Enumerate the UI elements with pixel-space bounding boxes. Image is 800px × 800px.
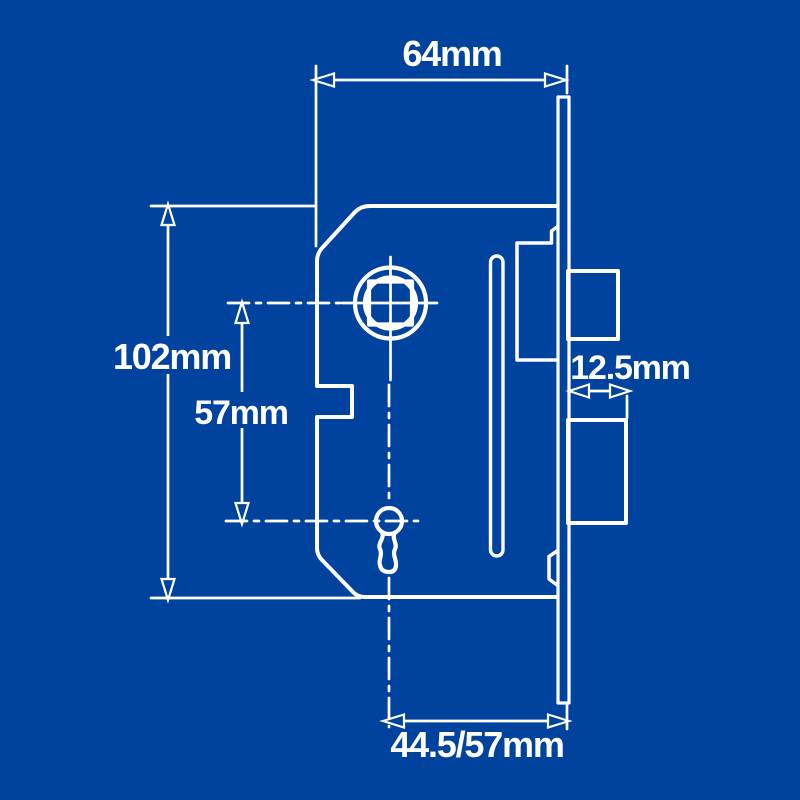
lock-case-outline	[317, 206, 557, 597]
inner-edge-slot	[491, 256, 504, 556]
keyhole	[376, 508, 402, 572]
dimension-bolt-throw: 12.5mm	[569, 349, 690, 418]
dimension-label-spindle-to-keyhole: 57mm	[194, 394, 287, 432]
arrowhead-right	[545, 74, 566, 87]
dimension-backset: 44.5/57mm	[383, 705, 569, 765]
dead-bolt	[568, 420, 626, 523]
dimension-label-bolt-throw: 12.5mm	[570, 349, 689, 387]
latch-bolt	[568, 271, 618, 339]
dimension-label-case-height: 102mm	[113, 336, 231, 377]
mortice-lock-diagram: 64mm 102mm 57mm 12.5mm	[0, 0, 800, 800]
latch-housing	[517, 227, 557, 360]
dimension-label-backset: 44.5/57mm	[390, 724, 563, 765]
dimension-label-case-width: 64mm	[402, 33, 501, 74]
arrowhead-up	[236, 302, 249, 323]
bottom-fixing-lug	[549, 551, 557, 585]
keyhole-slot	[379, 532, 396, 572]
lock-technical-drawing: 64mm 102mm 57mm 12.5mm	[0, 0, 800, 800]
spindle-follower	[342, 257, 437, 380]
faceplate	[558, 97, 569, 703]
